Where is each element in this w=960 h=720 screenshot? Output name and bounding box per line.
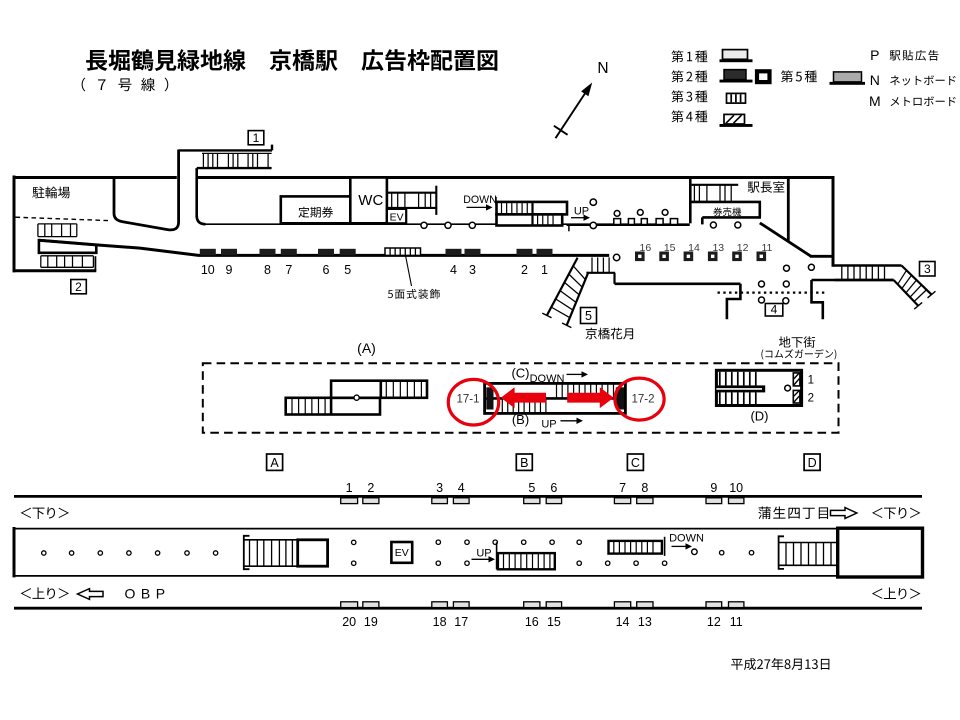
svg-text:17-1: 17-1 <box>456 394 479 406</box>
svg-text:7: 7 <box>619 481 626 495</box>
svg-text:M: M <box>869 93 881 109</box>
svg-text:N: N <box>597 60 608 77</box>
svg-text:16: 16 <box>525 615 539 629</box>
svg-text:9: 9 <box>226 263 233 277</box>
svg-text:1: 1 <box>808 375 814 387</box>
svg-text:11: 11 <box>730 615 743 629</box>
svg-text:19: 19 <box>364 615 378 629</box>
svg-text:20: 20 <box>342 615 356 629</box>
svg-text:DOWN: DOWN <box>463 194 497 206</box>
svg-text:N: N <box>870 72 880 88</box>
svg-text:12: 12 <box>737 242 749 254</box>
svg-text:3: 3 <box>436 481 443 495</box>
svg-text:2: 2 <box>521 263 528 277</box>
svg-text:14: 14 <box>616 615 630 629</box>
svg-text:4: 4 <box>450 263 457 277</box>
svg-text:C: C <box>631 456 640 470</box>
svg-text:7: 7 <box>285 263 292 277</box>
svg-text:4: 4 <box>458 481 465 495</box>
svg-text:10: 10 <box>201 263 215 277</box>
svg-text:3: 3 <box>924 262 931 276</box>
svg-text:WC: WC <box>358 192 383 209</box>
svg-text:14: 14 <box>688 242 700 254</box>
svg-text:(B): (B) <box>512 412 529 427</box>
svg-text:6: 6 <box>323 263 330 277</box>
svg-text:2: 2 <box>367 481 374 495</box>
svg-text:15: 15 <box>547 615 561 629</box>
svg-text:OBP: OBP <box>125 586 171 602</box>
svg-text:1: 1 <box>541 263 548 277</box>
svg-text:9: 9 <box>710 481 717 495</box>
svg-text:5: 5 <box>585 309 592 323</box>
svg-text:UP: UP <box>541 419 556 431</box>
svg-text:10: 10 <box>729 481 743 495</box>
svg-text:(A): (A) <box>357 340 376 356</box>
svg-text:EV: EV <box>395 547 409 559</box>
svg-text:13: 13 <box>712 242 724 254</box>
svg-text:6: 6 <box>550 481 557 495</box>
svg-text:4: 4 <box>771 303 778 317</box>
svg-text:A: A <box>270 456 279 470</box>
svg-text:1: 1 <box>346 481 353 495</box>
svg-text:P: P <box>870 47 879 63</box>
svg-text:B: B <box>520 456 528 470</box>
svg-text:17: 17 <box>454 615 468 629</box>
svg-text:EV: EV <box>390 212 404 223</box>
svg-text:(C): (C) <box>511 366 529 381</box>
svg-text:DOWN: DOWN <box>669 533 704 545</box>
svg-text:2: 2 <box>75 280 82 294</box>
svg-text:8: 8 <box>264 263 271 277</box>
svg-text:5: 5 <box>344 263 351 277</box>
svg-text:11: 11 <box>761 242 772 254</box>
svg-text:12: 12 <box>707 615 721 629</box>
svg-text:1: 1 <box>253 131 260 145</box>
svg-text:17-2: 17-2 <box>631 394 654 406</box>
svg-text:(D): (D) <box>750 409 768 424</box>
svg-text:16: 16 <box>640 242 652 254</box>
svg-text:2: 2 <box>808 393 814 405</box>
svg-text:D: D <box>808 456 817 470</box>
svg-text:13: 13 <box>638 615 652 629</box>
svg-text:8: 8 <box>641 481 648 495</box>
svg-text:UP: UP <box>574 206 589 218</box>
svg-text:5: 5 <box>528 481 535 495</box>
svg-text:15: 15 <box>664 242 676 254</box>
svg-text:3: 3 <box>469 263 476 277</box>
svg-text:18: 18 <box>433 615 447 629</box>
